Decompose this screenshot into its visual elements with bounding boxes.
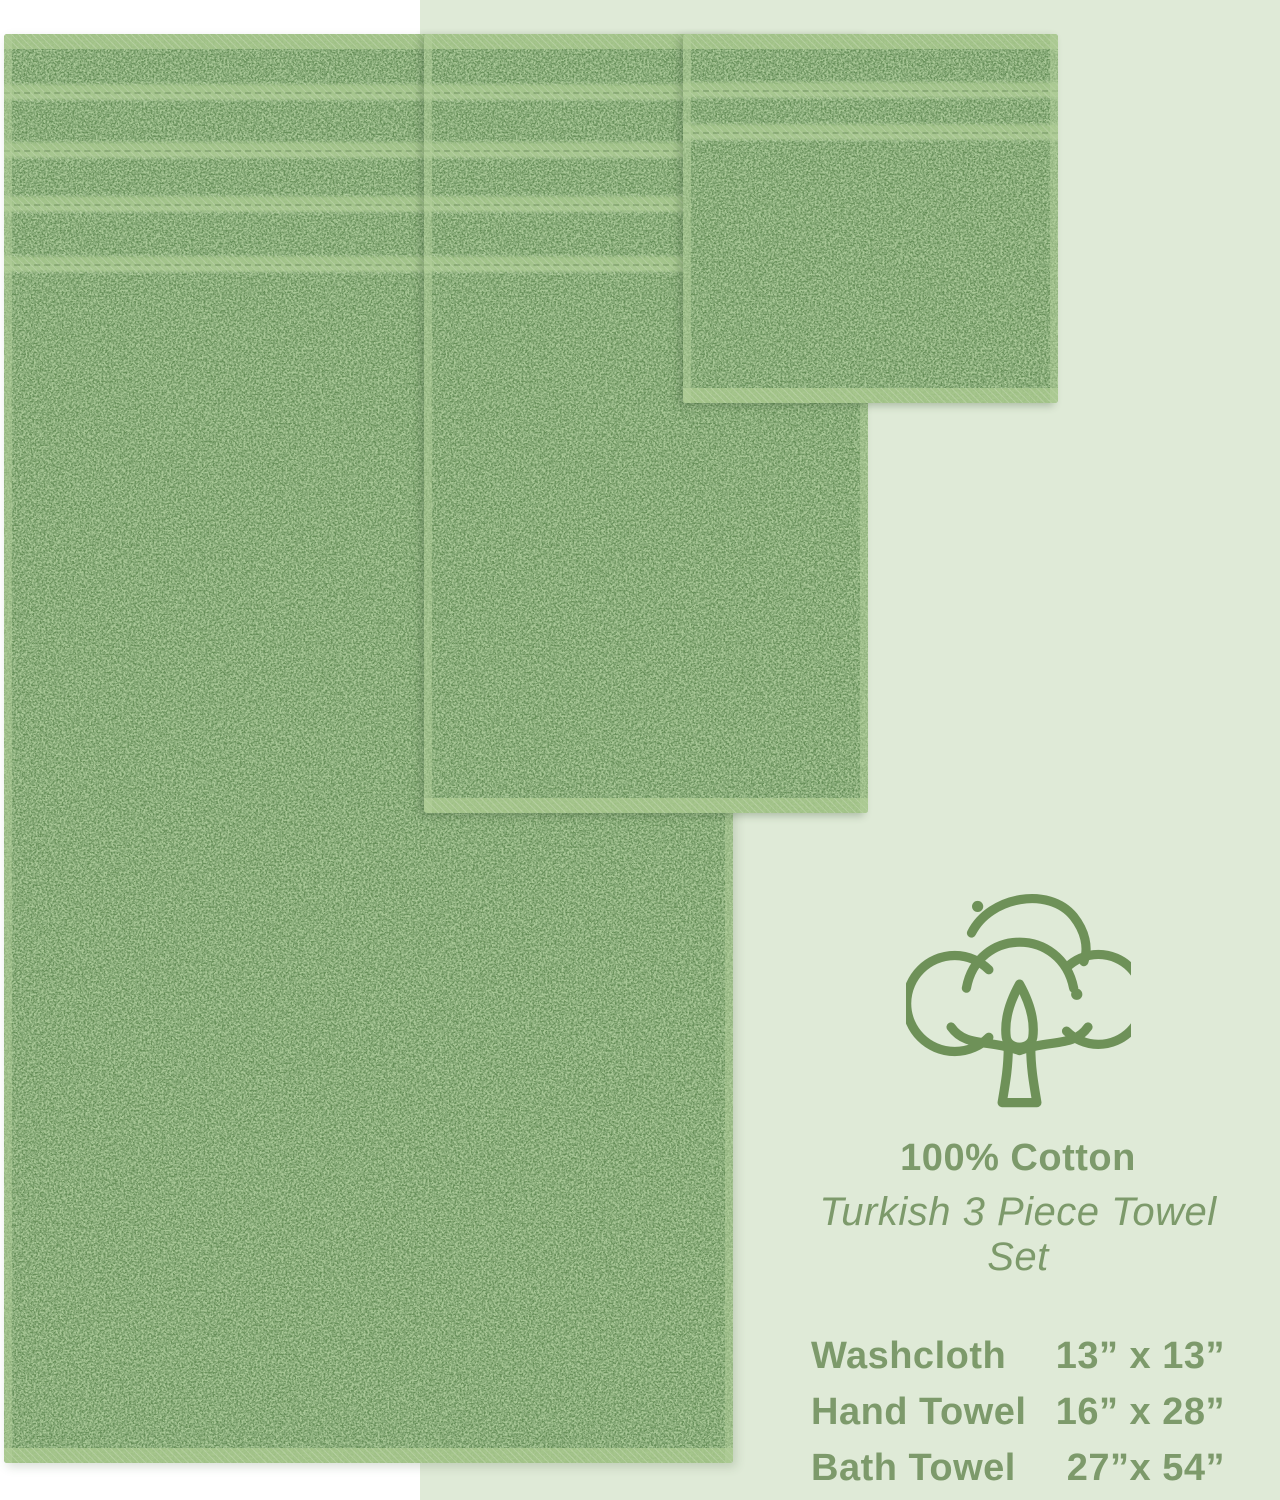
- towel-hem: [4, 1448, 733, 1463]
- washcloth-photo: [683, 34, 1058, 403]
- size-row-washcloth: Washcloth 13” x 13”: [811, 1328, 1225, 1384]
- size-row-bath-towel: Bath Towel 27”x 54”: [811, 1440, 1225, 1496]
- product-image: 100% Cotton Turkish 3 Piece Towel Set Wa…: [0, 0, 1280, 1500]
- dobby-stripe: [683, 122, 1058, 142]
- size-row-hand-towel: Hand Towel 16” x 28”: [811, 1384, 1225, 1440]
- size-item-label: Hand Towel: [811, 1384, 1026, 1440]
- towel-edge: [424, 34, 432, 813]
- towel-hem: [424, 798, 868, 813]
- size-item-dimensions: 27”x 54”: [1067, 1440, 1225, 1496]
- icon-dot: [972, 901, 983, 912]
- product-info-panel: 100% Cotton Turkish 3 Piece Towel Set Wa…: [793, 886, 1243, 1496]
- size-list: Washcloth 13” x 13” Hand Towel 16” x 28”…: [793, 1328, 1243, 1496]
- cotton-label: 100% Cotton: [793, 1137, 1243, 1180]
- towel-hem: [683, 34, 1058, 49]
- towel-edge: [683, 34, 691, 403]
- size-item-dimensions: 13” x 13”: [1056, 1328, 1225, 1384]
- size-item-label: Bath Towel: [811, 1440, 1016, 1496]
- towel-hem: [683, 388, 1058, 403]
- set-label: Turkish 3 Piece Towel Set: [793, 1190, 1243, 1280]
- towel-edge: [4, 34, 12, 1463]
- towel-edge: [1050, 34, 1058, 403]
- icon-dot: [1071, 989, 1082, 1000]
- dobby-stripe: [683, 80, 1058, 100]
- size-item-dimensions: 16” x 28”: [1056, 1384, 1225, 1440]
- size-item-label: Washcloth: [811, 1328, 1006, 1384]
- cotton-flower-icon: [906, 886, 1131, 1121]
